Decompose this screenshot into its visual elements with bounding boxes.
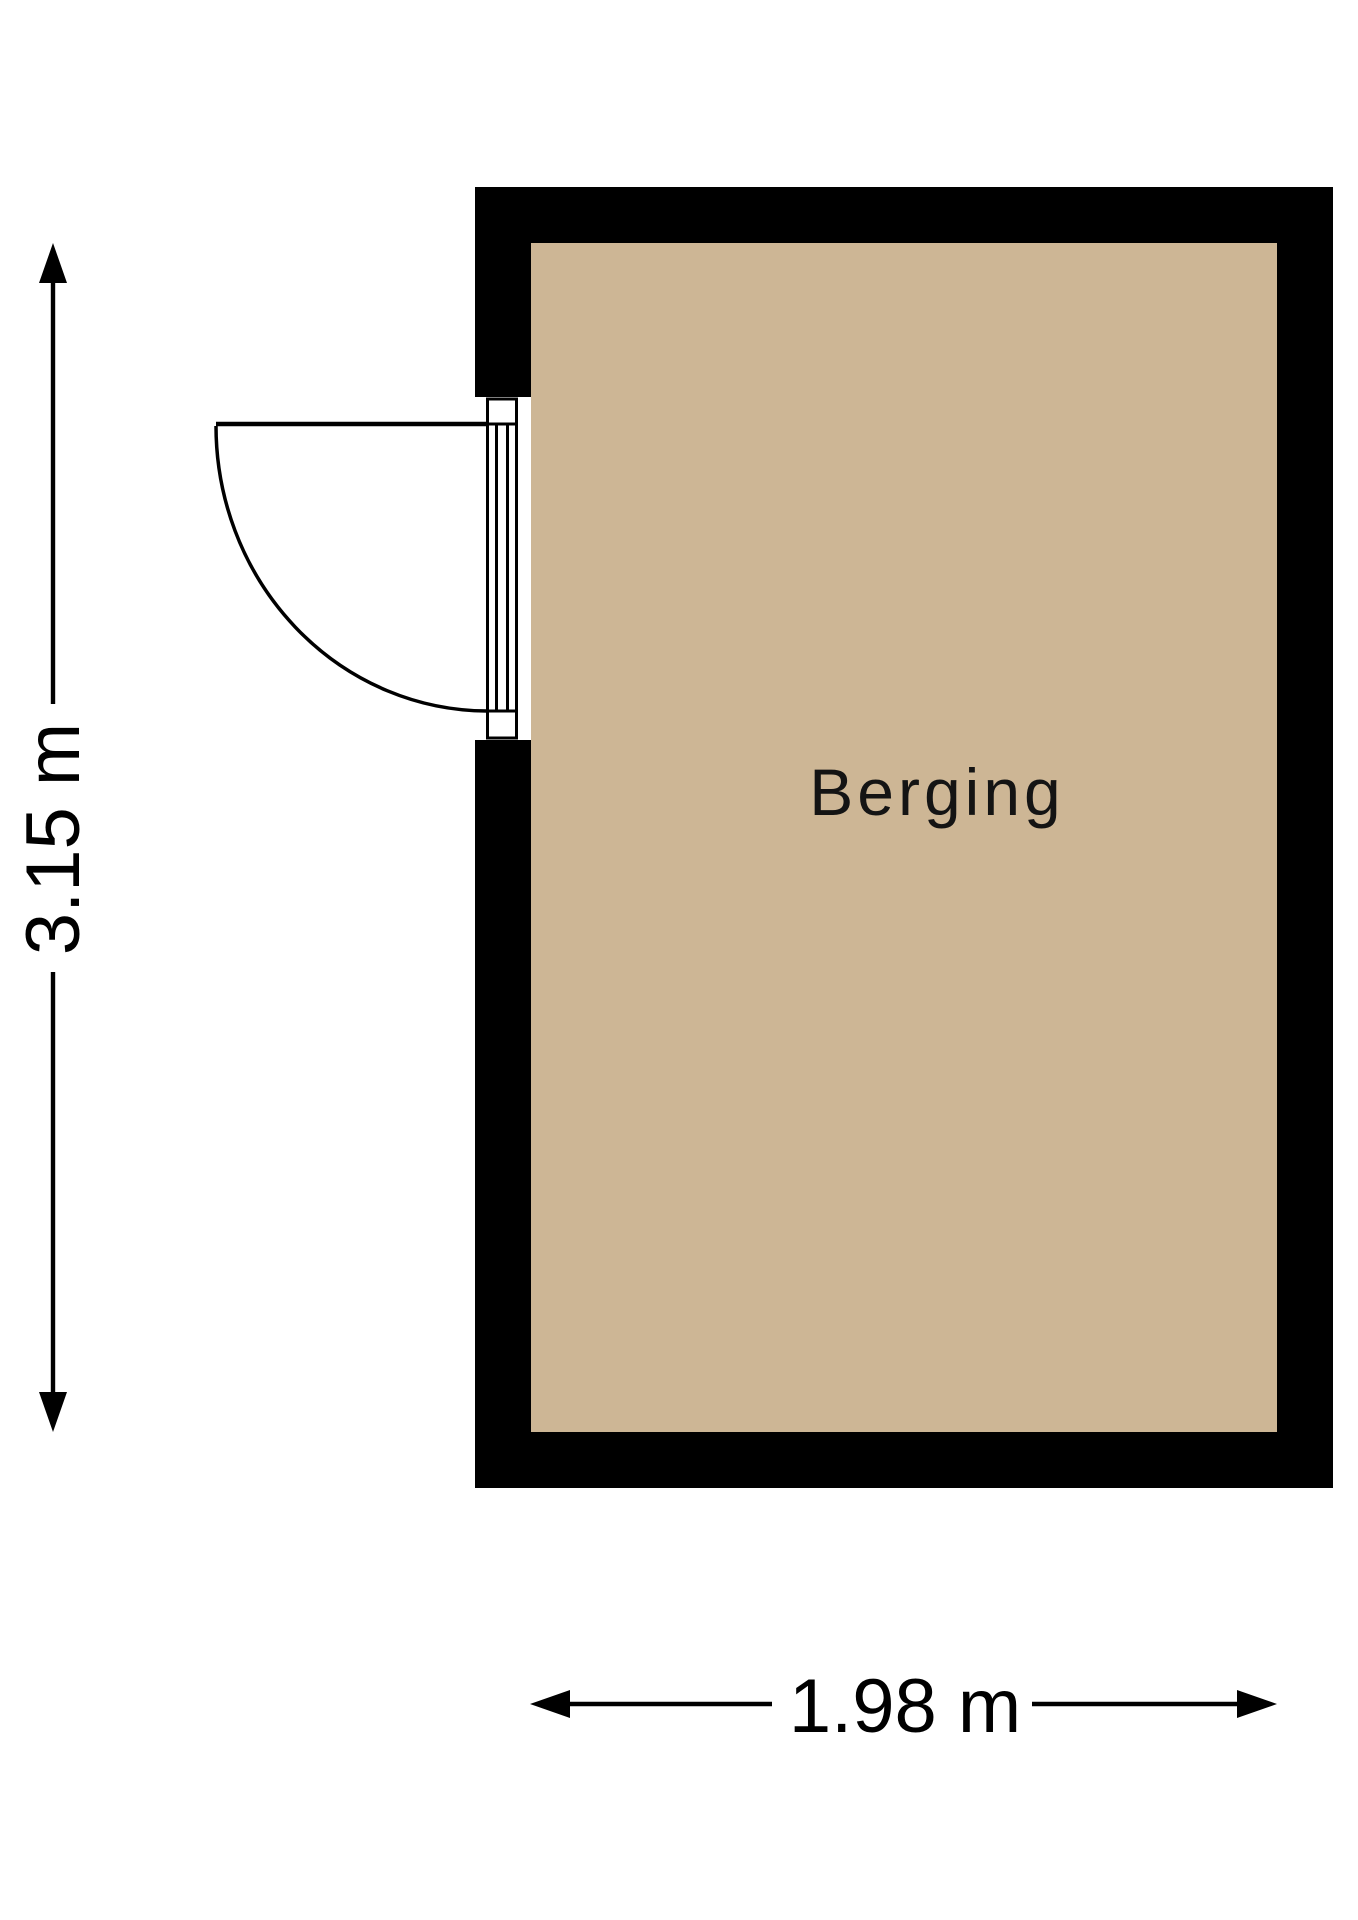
door xyxy=(216,399,517,738)
wall-left-lower xyxy=(475,740,531,1432)
floorplan-page: 3.15 m 1.98 m Berging xyxy=(0,0,1358,1920)
dim-arrow-up-icon xyxy=(39,243,67,283)
room-label: Berging xyxy=(809,755,1065,829)
dimension-vertical: 3.15 m xyxy=(11,243,96,1432)
door-frame xyxy=(488,424,517,711)
door-jamb-top xyxy=(488,399,517,424)
wall-bottom xyxy=(475,1432,1333,1488)
room-floor xyxy=(531,243,1277,1432)
dimension-width-label: 1.98 m xyxy=(789,1664,1021,1749)
dim-arrow-right-icon xyxy=(1237,1690,1277,1718)
wall-left-upper xyxy=(475,243,531,397)
wall-top xyxy=(475,187,1333,243)
floorplan-canvas: 3.15 m 1.98 m Berging xyxy=(0,0,1358,1920)
dim-arrow-left-icon xyxy=(530,1690,570,1718)
dimension-height-label: 3.15 m xyxy=(11,723,96,955)
dim-arrow-down-icon xyxy=(39,1392,67,1432)
wall-right xyxy=(1277,243,1333,1432)
door-swing-arc xyxy=(216,426,487,711)
dimension-horizontal: 1.98 m xyxy=(530,1664,1277,1749)
door-jamb-bottom xyxy=(488,711,517,738)
